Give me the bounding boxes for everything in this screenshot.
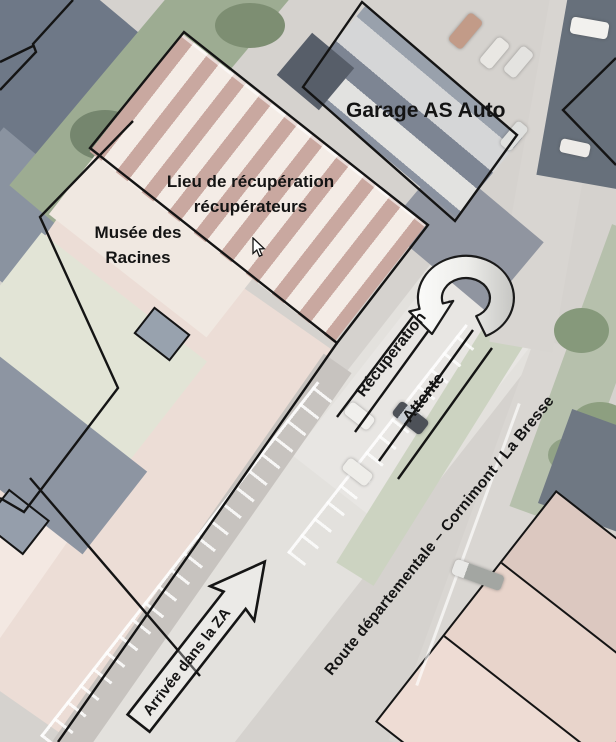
aerial-map-canvas[interactable]: Arrivée dans la ZA Garage AS Auto Lieu d… bbox=[0, 0, 616, 742]
u-turn-arrow-icon bbox=[406, 242, 521, 357]
recovery-site-label-line1: Lieu de récupération bbox=[148, 170, 353, 195]
mouse-cursor-icon bbox=[252, 237, 268, 259]
museum-label: Musée des Racines bbox=[73, 221, 203, 270]
building-outlines-overlay bbox=[0, 0, 616, 742]
garage-label: Garage AS Auto bbox=[346, 99, 505, 123]
museum-label-line2: Racines bbox=[73, 246, 203, 271]
outline-roof-topleft bbox=[0, 0, 73, 90]
outline-museum-complex bbox=[0, 121, 133, 512]
recovery-site-label-line2: récupérateurs bbox=[148, 195, 353, 220]
museum-label-line1: Musée des bbox=[73, 221, 203, 246]
recovery-site-label: Lieu de récupération récupérateurs bbox=[148, 170, 353, 219]
outline-corner-topright bbox=[563, 58, 616, 165]
